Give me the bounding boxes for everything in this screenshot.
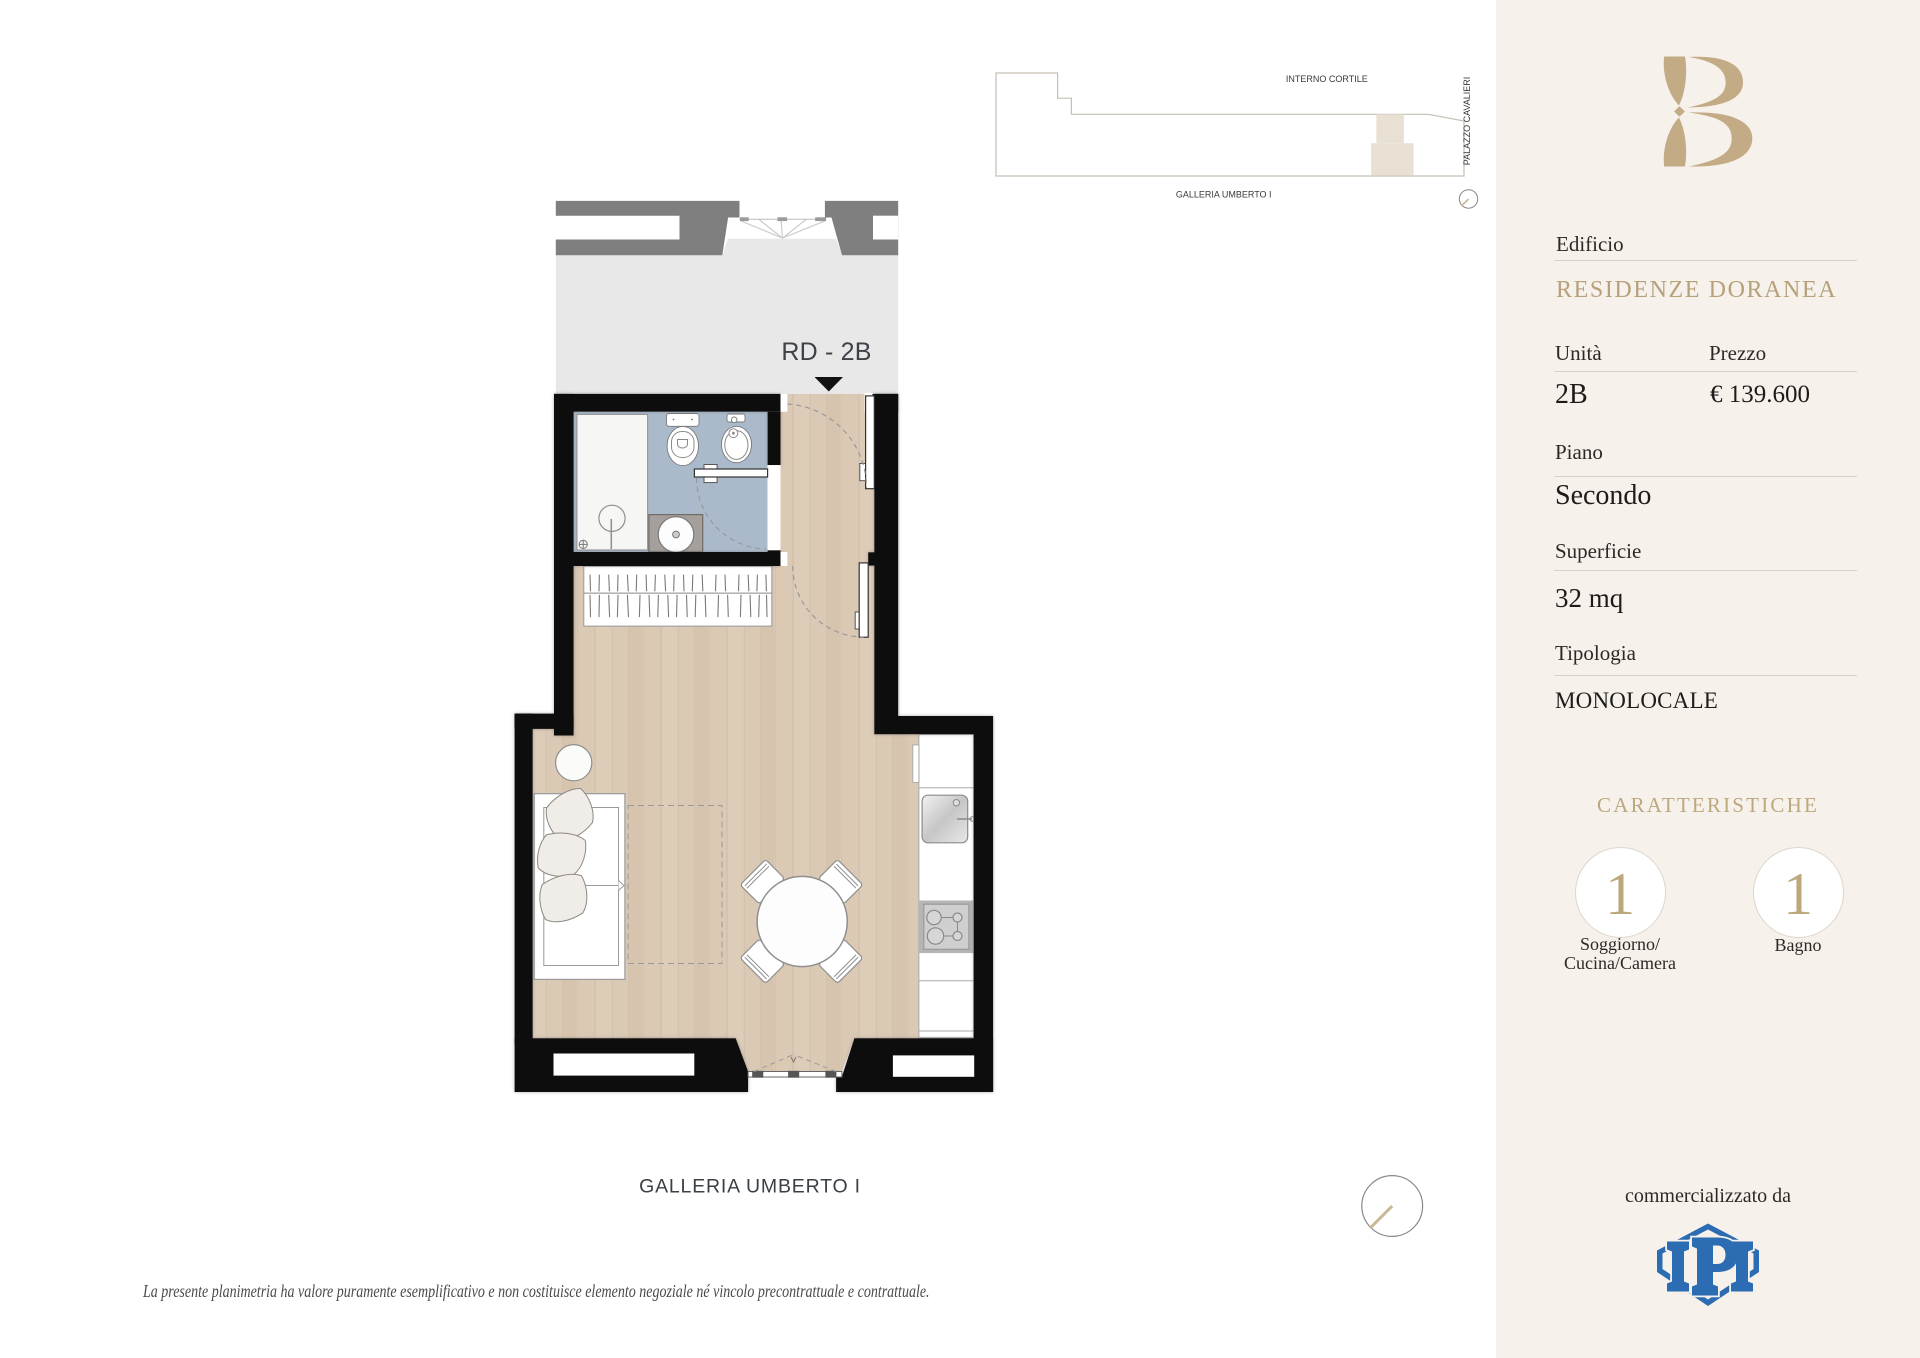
svg-text:GALLERIA UMBERTO I: GALLERIA UMBERTO I	[1176, 190, 1272, 200]
svg-text:GALLERIA UMBERTO I: GALLERIA UMBERTO I	[639, 1176, 861, 1198]
svg-text:PALAZZO CAVALIERI: PALAZZO CAVALIERI	[1462, 77, 1472, 166]
svg-text:INTERNO CORTILE: INTERNO CORTILE	[1286, 74, 1368, 84]
svg-text:RD - 2B: RD - 2B	[781, 338, 871, 366]
